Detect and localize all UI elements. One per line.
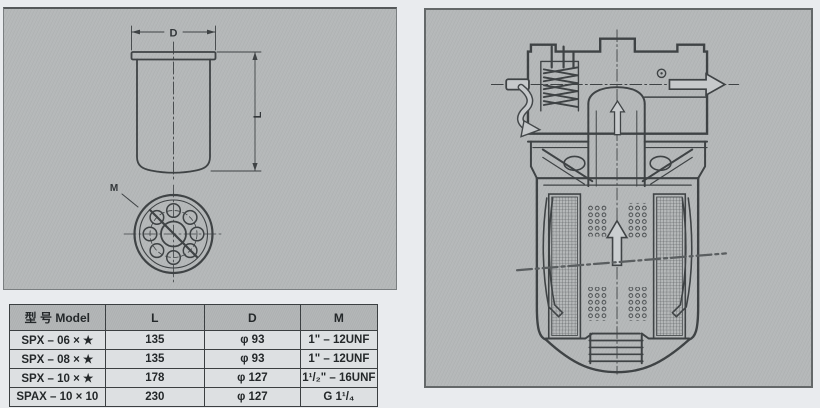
cell-l: 230 bbox=[105, 388, 204, 407]
dim-label-l: L bbox=[252, 111, 264, 118]
table-header-row: 型 号 Model L D M bbox=[10, 305, 378, 331]
dimension-l: L bbox=[211, 52, 264, 171]
header-d: D bbox=[205, 305, 301, 331]
center-standpipe bbox=[588, 87, 644, 186]
cell-d: φ 127 bbox=[205, 369, 301, 388]
cell-m: 1" – 12UNF bbox=[300, 331, 377, 350]
header-l: L bbox=[105, 305, 204, 331]
inlet-flow-arrow bbox=[520, 87, 539, 136]
spec-table: 型 号 Model L D M SPX – 06 × ★ 135 φ 93 1"… bbox=[9, 304, 378, 407]
cell-model: SPX – 08 × ★ bbox=[10, 350, 106, 369]
filter-element-right bbox=[654, 194, 686, 338]
cell-l: 135 bbox=[105, 350, 204, 369]
table-row: SPAX – 10 × 10 230 φ 127 G 1¹/₄ bbox=[10, 388, 378, 407]
cell-d: φ 93 bbox=[205, 331, 301, 350]
dim-label-d: D bbox=[170, 28, 178, 40]
bypass-spring bbox=[544, 47, 578, 107]
cell-model: SPAX – 10 × 10 bbox=[10, 388, 106, 407]
table-row: SPX – 06 × ★ 135 φ 93 1" – 12UNF bbox=[10, 331, 378, 350]
cell-m: 1¹/₂" – 16UNF bbox=[300, 369, 377, 388]
dim-arrow-right bbox=[207, 30, 216, 35]
dim-arrow-up bbox=[252, 52, 257, 60]
up-flow-arrow-small bbox=[611, 101, 625, 135]
up-flow-arrow-main bbox=[607, 221, 627, 266]
bottom-thread bbox=[589, 334, 642, 364]
dim-arrow-left bbox=[132, 30, 141, 35]
m-leader-line bbox=[122, 194, 138, 207]
thread-label-m: M bbox=[110, 183, 118, 194]
dimension-drawing-panel: D L bbox=[3, 7, 397, 290]
cross-section-panel bbox=[424, 8, 813, 388]
cartridge-front-view bbox=[132, 42, 216, 181]
cell-m: G 1¹/₄ bbox=[300, 388, 377, 407]
cell-d: φ 93 bbox=[205, 350, 301, 369]
dim-arrow-down bbox=[252, 163, 257, 171]
cell-l: 135 bbox=[105, 331, 204, 350]
cell-d: φ 127 bbox=[205, 388, 301, 407]
filter-cartridge-drawing: D L bbox=[4, 9, 396, 289]
filter-assembly-cross-section bbox=[426, 10, 811, 386]
table-row: SPX – 10 × ★ 178 φ 127 1¹/₂" – 16UNF bbox=[10, 369, 378, 388]
flange-hole-right bbox=[650, 156, 671, 170]
outlet-flow-arrow bbox=[669, 74, 724, 95]
cell-model: SPX – 06 × ★ bbox=[10, 331, 106, 350]
header-model: 型 号 Model bbox=[10, 305, 106, 331]
flange-hole-left bbox=[564, 156, 585, 170]
cell-m: 1" – 12UNF bbox=[300, 350, 377, 369]
table-row: SPX – 08 × ★ 135 φ 93 1" – 12UNF bbox=[10, 350, 378, 369]
cell-l: 178 bbox=[105, 369, 204, 388]
cartridge-bottom-view: M bbox=[110, 183, 223, 283]
header-m: M bbox=[300, 305, 377, 331]
cell-model: SPX – 10 × ★ bbox=[10, 369, 106, 388]
